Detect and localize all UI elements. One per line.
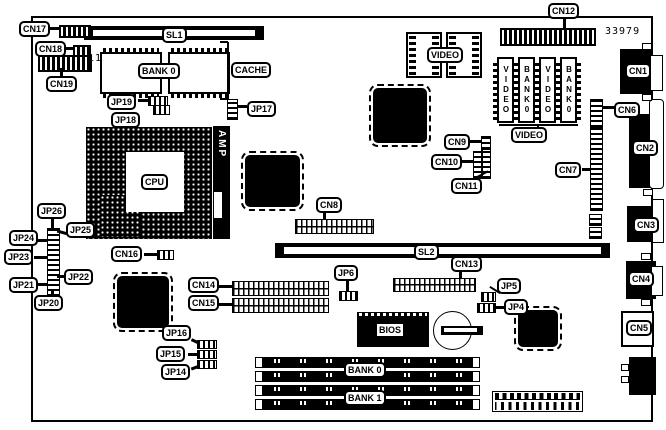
label-jp26: JP26 (37, 203, 66, 219)
vram-chip-3: VIDEO (539, 57, 556, 123)
header-cn7-aux-a (589, 214, 602, 226)
label-jp14: JP14 (161, 364, 190, 380)
pointer-jp21 (38, 283, 48, 286)
slot-sl2 (275, 243, 610, 258)
jumper-block-column (47, 228, 60, 297)
label-bios: BIOS (375, 322, 405, 338)
motherboard-diagram: CN17 CN18 11 CN19 SL1 BANK 0 CACHE JP19 … (0, 0, 666, 430)
label-jp22: JP22 (64, 269, 93, 285)
battery-clip-slot (444, 328, 477, 332)
pointer-cn10 (460, 160, 474, 163)
label-cpu: CPU (141, 174, 168, 190)
vram-chip-3-label: VIDEO (544, 65, 552, 115)
pointer-cn17 (49, 27, 60, 30)
pointer-jp15 (188, 353, 198, 356)
cache-bracket-top (220, 41, 228, 43)
edge-tab (643, 189, 653, 196)
header-cn19 (38, 55, 92, 72)
edge-tab (641, 299, 651, 306)
label-cache-bank0: BANK 0 (138, 63, 180, 79)
label-cn14: CN14 (188, 277, 219, 293)
header-cn17 (59, 25, 91, 38)
jumper-jp15 (197, 350, 217, 359)
label-cn18: CN18 (35, 41, 66, 57)
keyboard-connector (629, 357, 656, 395)
vram-chip-2: BANK0 (518, 57, 535, 123)
label-jp15: JP15 (156, 346, 185, 362)
header-cn16 (157, 250, 174, 260)
chipset-qfp-2 (373, 88, 427, 143)
label-cn5: CN5 (626, 320, 652, 336)
label-cn13: CN13 (451, 256, 482, 272)
pointer-jp23 (34, 256, 47, 259)
amp-regulator: AMP (213, 126, 230, 239)
pointer-jp19 (138, 99, 150, 102)
cache-bracket-bottom (220, 98, 228, 100)
label-jp23: JP23 (4, 249, 33, 265)
part-number: 33979 (605, 26, 640, 37)
cn19-pin-count: 11 (88, 53, 102, 64)
keyboard-connector-tab (621, 376, 629, 383)
label-cn1: CN1 (625, 63, 651, 79)
label-jp16: JP16 (162, 325, 191, 341)
pointer-cn9 (469, 140, 482, 143)
edge-tab (642, 43, 652, 50)
pointer-cn14 (219, 285, 232, 288)
label-jp6: JP6 (334, 265, 358, 281)
header-cn13 (393, 278, 476, 292)
edge-tab (642, 94, 652, 101)
header-cn7 (590, 128, 603, 211)
header-cn15 (232, 298, 329, 313)
header-cn14 (232, 281, 329, 296)
label-cn12: CN12 (548, 3, 579, 19)
edge-tab (641, 253, 651, 260)
label-jp21: JP21 (9, 277, 38, 293)
label-jp17: JP17 (247, 101, 276, 117)
header-cn7-aux-b (589, 227, 602, 239)
header-cn8 (295, 219, 374, 234)
label-cn4: CN4 (628, 271, 654, 287)
io-controller-qfp (117, 276, 169, 328)
vram-chip-4: BANK0 (560, 57, 577, 123)
pointer-cn7 (582, 168, 591, 171)
header-cn6 (590, 99, 603, 128)
label-video-dip: VIDEO (427, 47, 463, 63)
label-jp24: JP24 (9, 230, 38, 246)
vram-chip-1-label: VIDEO (502, 65, 510, 115)
label-bank1: BANK 1 (344, 390, 386, 406)
label-cn3: CN3 (633, 217, 659, 233)
label-cn10: CN10 (431, 154, 462, 170)
label-cn8: CN8 (316, 197, 342, 213)
keyboard-connector-tab (621, 364, 629, 371)
chipset-qfp-3 (518, 310, 558, 347)
jumper-jp17 (227, 99, 238, 120)
label-cache: CACHE (231, 62, 271, 78)
header-cn12 (500, 28, 596, 46)
label-cn11: CN11 (451, 178, 482, 194)
jumper-jp14 (197, 360, 217, 369)
pointer-jp24 (38, 239, 48, 242)
label-cn19: CN19 (46, 76, 77, 92)
label-cn15: CN15 (188, 295, 219, 311)
connector-cn1-dsub (650, 55, 663, 91)
amp-notch (214, 192, 222, 218)
label-cn7: CN7 (555, 162, 581, 178)
cache-bracket (227, 42, 229, 100)
chipset-qfp-1 (245, 155, 300, 207)
label-bank0: BANK 0 (344, 362, 386, 378)
jumper-jp5 (481, 292, 496, 302)
label-sl2: SL2 (414, 244, 439, 260)
label-cn17: CN17 (19, 21, 50, 37)
jumper-jp19-b (153, 105, 170, 115)
label-cn2: CN2 (632, 140, 658, 156)
label-video-group: VIDEO (511, 127, 547, 143)
label-jp4: JP4 (504, 299, 528, 315)
label-cn6: CN6 (614, 102, 640, 118)
label-cn16: CN16 (111, 246, 142, 262)
label-amp: AMP (216, 130, 227, 158)
vram-chip-4-label: BANK0 (565, 65, 573, 115)
pointer-jp17 (237, 105, 247, 108)
pointer-cn16 (144, 253, 157, 256)
label-jp20: JP20 (34, 295, 63, 311)
label-cn9: CN9 (444, 134, 470, 150)
label-jp19: JP19 (107, 94, 136, 110)
vram-chip-2-label: BANK0 (523, 65, 531, 115)
power-connector (492, 391, 583, 412)
label-sl1: SL1 (162, 27, 187, 43)
label-jp18: JP18 (111, 112, 140, 128)
label-jp25: JP25 (66, 222, 95, 238)
vram-chip-1: VIDEO (497, 57, 514, 123)
label-jp5: JP5 (497, 278, 521, 294)
jumper-jp6 (339, 291, 358, 301)
pointer-cn15 (219, 303, 232, 306)
